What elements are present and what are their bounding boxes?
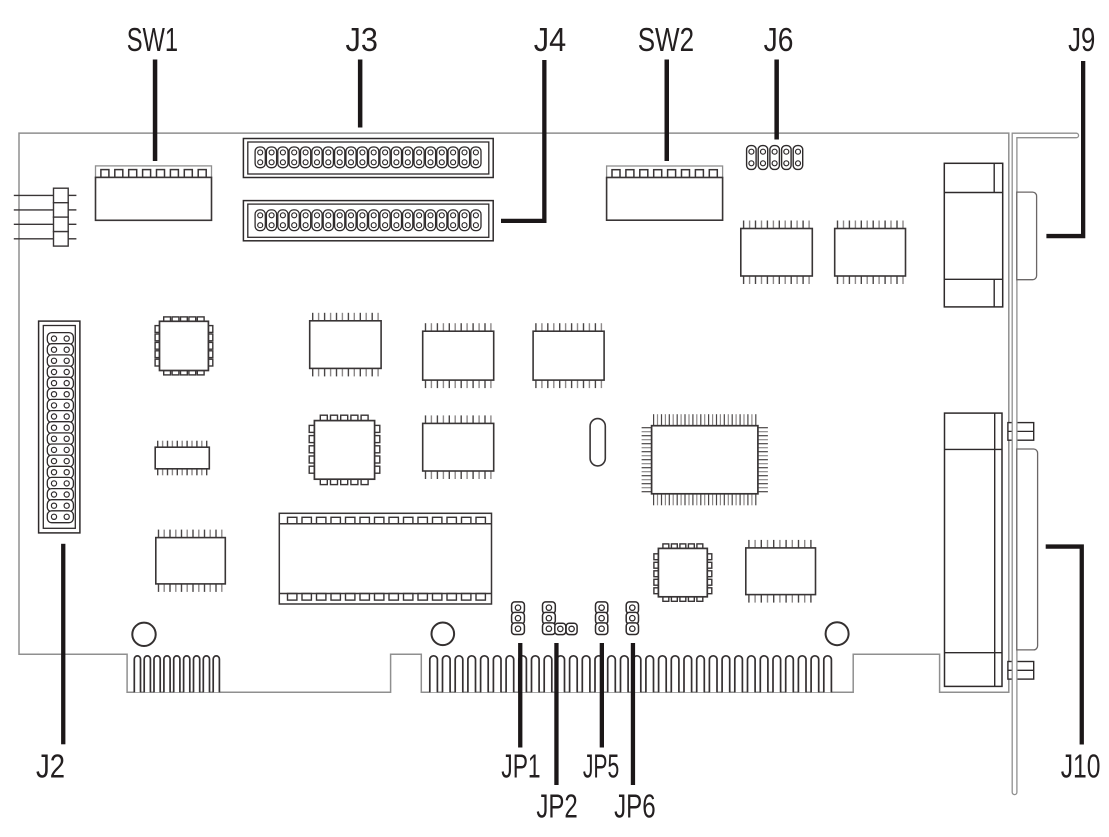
svg-text:J2: J2 (36, 748, 65, 785)
svg-text:J9: J9 (1068, 21, 1095, 58)
svg-text:SW2: SW2 (638, 21, 694, 58)
svg-text:JP5: JP5 (583, 748, 619, 785)
svg-text:J6: J6 (764, 21, 794, 58)
svg-text:SW1: SW1 (127, 21, 178, 58)
svg-text:J4: J4 (534, 21, 566, 58)
svg-text:JP2: JP2 (536, 787, 577, 824)
svg-text:JP1: JP1 (501, 748, 540, 785)
svg-text:J3: J3 (346, 21, 378, 58)
svg-text:J10: J10 (1061, 748, 1101, 785)
svg-text:JP6: JP6 (614, 787, 656, 824)
